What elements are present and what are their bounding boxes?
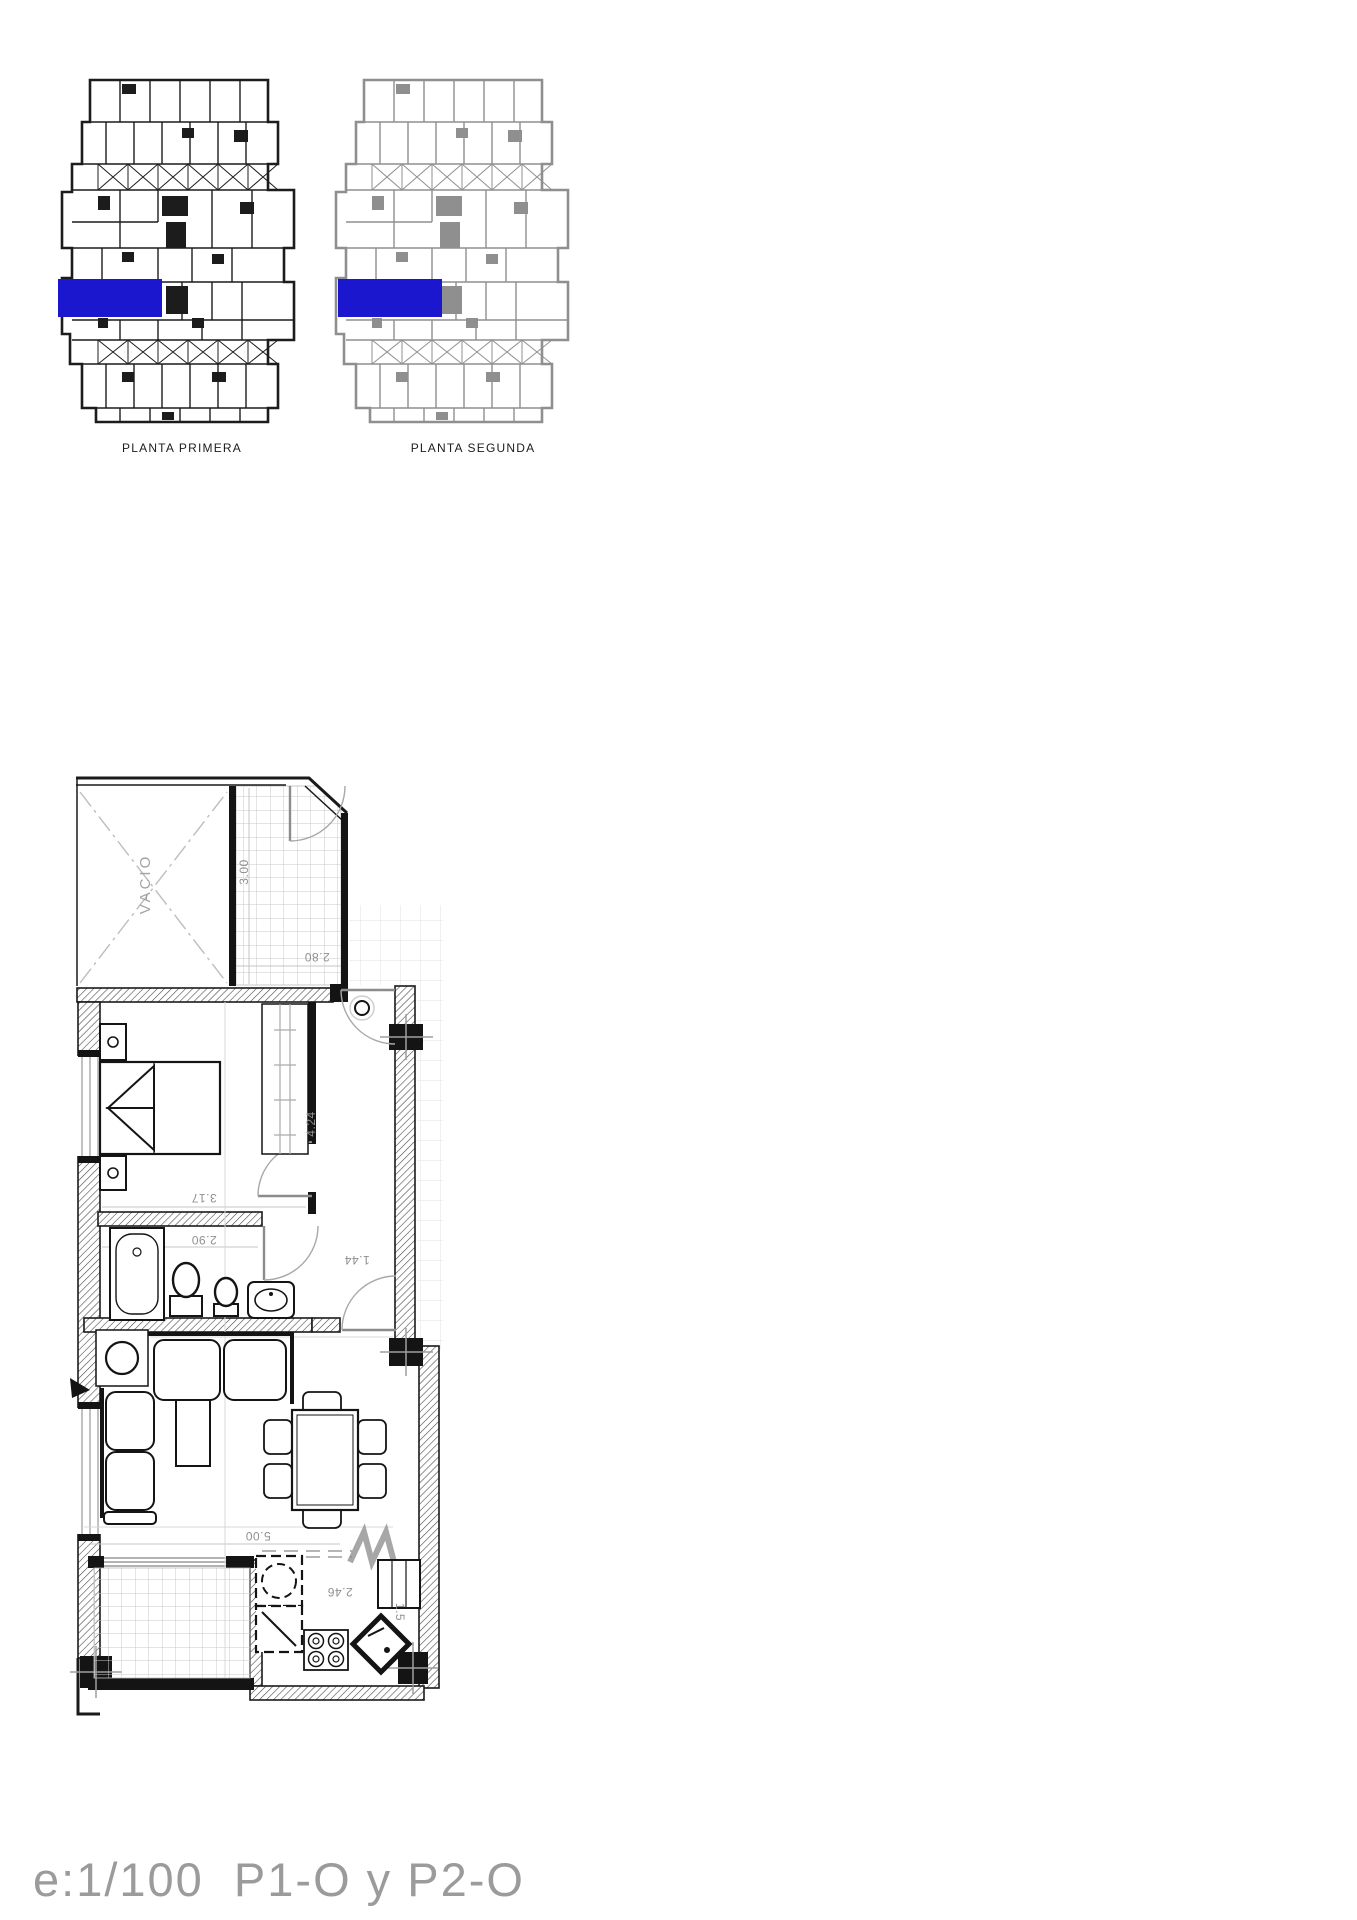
dim-bedroom-width: 3.17 bbox=[191, 1191, 216, 1205]
dim-kitchen-width: 2.46 bbox=[327, 1585, 352, 1599]
dim-terrace-width: 2.80 bbox=[304, 950, 329, 964]
stove bbox=[304, 1630, 348, 1670]
terrace-bottom-tiles bbox=[94, 1568, 250, 1678]
dim-living-width: 5.00 bbox=[245, 1529, 270, 1543]
floor-plan-sheet: PLANTA PRIMERA PLANTA SEGUNDA VACIO bbox=[0, 0, 1357, 1920]
plan-primera-label: PLANTA PRIMERA bbox=[122, 441, 242, 455]
wardrobe bbox=[262, 1004, 308, 1154]
sofa-seat bbox=[224, 1340, 286, 1400]
void-label: VACIO bbox=[137, 854, 154, 915]
dining-table bbox=[292, 1410, 358, 1510]
dim-bedroom-length: 4.24 bbox=[304, 1111, 318, 1136]
unit-highlight-primera bbox=[58, 279, 162, 317]
apartment-plan: VACIO bbox=[70, 778, 443, 1714]
overview-plan-primera: PLANTA PRIMERA bbox=[58, 80, 294, 455]
dim-kitchen-depth: 1.5 bbox=[393, 1603, 407, 1621]
chair bbox=[358, 1420, 386, 1454]
terrace-sliding-door bbox=[104, 1558, 226, 1566]
bidet bbox=[214, 1278, 238, 1316]
overview-plan-segunda: PLANTA SEGUNDA bbox=[336, 80, 568, 455]
kitchen-sink bbox=[262, 1564, 296, 1598]
chair bbox=[264, 1420, 292, 1454]
sofa-seat bbox=[106, 1392, 154, 1450]
window-symbol bbox=[350, 1532, 394, 1562]
chair bbox=[358, 1464, 386, 1498]
dim-hall-width: 1.44 bbox=[344, 1253, 369, 1267]
dining-set bbox=[264, 1392, 386, 1528]
ceiling-light bbox=[350, 996, 374, 1020]
dim-bathroom-width: 2.90 bbox=[191, 1233, 216, 1247]
chair bbox=[264, 1464, 292, 1498]
sofa-seat bbox=[106, 1452, 154, 1510]
plan-segunda-label: PLANTA SEGUNDA bbox=[411, 441, 536, 455]
living-furniture bbox=[96, 1330, 386, 1528]
neighbour-terrace-tiles bbox=[417, 905, 443, 1350]
scale-title: e:1/100 P1-O y P2-O bbox=[33, 1853, 525, 1906]
unit-highlight-segunda bbox=[338, 279, 442, 317]
sofa-seat bbox=[154, 1340, 220, 1400]
toilet bbox=[170, 1263, 202, 1316]
tall-cabinet bbox=[378, 1560, 420, 1608]
sink bbox=[248, 1282, 294, 1318]
side-table-lamp bbox=[106, 1342, 138, 1374]
coffee-table bbox=[176, 1400, 210, 1466]
dim-terrace-depth: 3.00 bbox=[237, 859, 251, 884]
bedroom-furniture bbox=[100, 1004, 308, 1190]
void-area: VACIO bbox=[80, 792, 227, 983]
